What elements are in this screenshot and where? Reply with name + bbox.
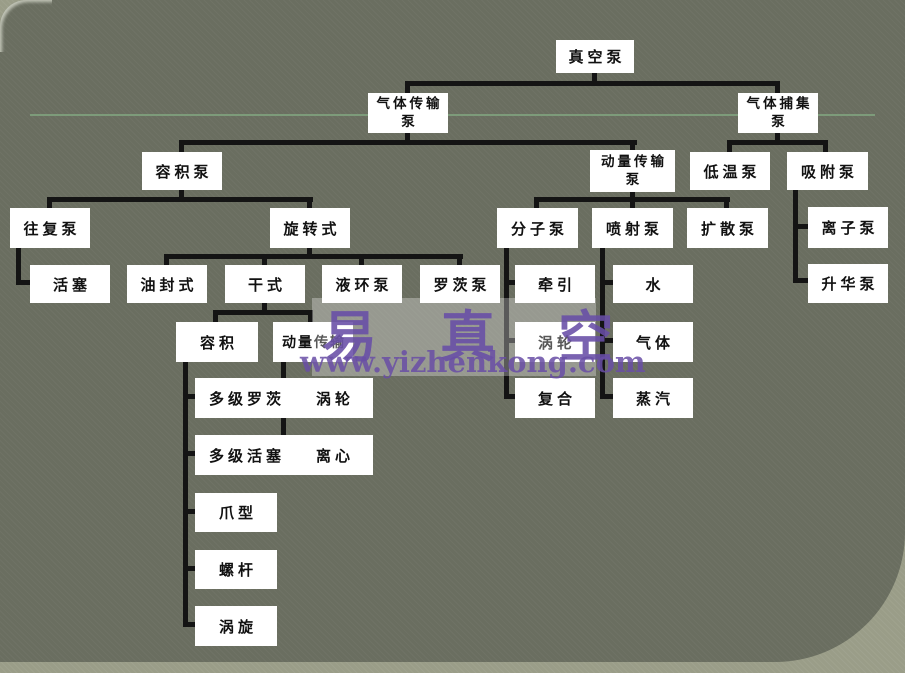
- connector-line: [16, 280, 30, 285]
- node-volume: 容积: [176, 322, 258, 362]
- connector-line: [183, 451, 195, 456]
- node-momentum-transfer-pump: 动量传输泵: [590, 150, 675, 192]
- connector-line: [823, 144, 828, 152]
- connector-line: [213, 314, 218, 322]
- connector-line: [179, 140, 637, 145]
- connector-line: [359, 258, 364, 265]
- connector-line: [405, 84, 410, 93]
- node-gas-transfer-pump: 气体传输泵: [368, 93, 448, 133]
- node-water: 水: [613, 265, 693, 303]
- connector-line: [504, 394, 515, 399]
- connector-line: [600, 394, 613, 399]
- corner-highlight: [0, 0, 52, 52]
- connector-line: [164, 258, 169, 265]
- connector-line: [307, 201, 312, 208]
- connector-line: [405, 81, 780, 86]
- node-rotary-type: 旋转式: [270, 208, 350, 248]
- node-steam: 蒸汽: [613, 378, 693, 418]
- node-piston: 活塞: [30, 265, 110, 303]
- node-diffusion-pump: 扩散泵: [687, 208, 768, 248]
- node-vacuum-pump: 真空泵: [556, 40, 634, 73]
- node-multistage-piston: 多级活塞: [195, 435, 295, 475]
- connector-line: [457, 258, 462, 265]
- connector-line: [727, 144, 732, 152]
- node-screw: 螺杆: [195, 550, 277, 589]
- connector-line: [183, 394, 195, 399]
- connector-line: [183, 566, 195, 571]
- connector-line: [183, 622, 195, 627]
- watermark-url-text: www.yizhenkong.com: [300, 345, 600, 379]
- connector-line: [600, 280, 613, 285]
- node-claw: 爪型: [195, 493, 277, 532]
- connector-line: [183, 362, 188, 625]
- connector-line: [164, 254, 463, 259]
- node-ion-pump: 离子泵: [808, 207, 888, 248]
- connector-line: [262, 258, 267, 265]
- node-sublimation-pump: 升华泵: [808, 264, 888, 303]
- node-multistage-roots: 多级罗茨: [195, 378, 295, 418]
- node-cryo-pump: 低温泵: [690, 152, 770, 190]
- connector-line: [179, 144, 184, 152]
- connector-line: [213, 310, 313, 315]
- connector-line: [47, 201, 52, 208]
- connector-line: [793, 190, 798, 283]
- node-oil-sealed: 油封式: [127, 265, 207, 303]
- node-gas-capture-pump: 气体捕集泵: [738, 93, 818, 133]
- node-turbine: 涡轮: [293, 378, 373, 418]
- connector-line: [504, 280, 515, 285]
- node-centrifugal: 离心: [293, 435, 373, 475]
- node-compound: 复合: [515, 378, 595, 418]
- connector-line: [724, 201, 729, 208]
- node-molecular-pump: 分子泵: [497, 208, 578, 248]
- node-dry-type: 干式: [225, 265, 305, 303]
- connector-line: [183, 509, 195, 514]
- slide: { "title": "真空泵分类图", "colors": { "slide_…: [0, 0, 905, 673]
- connector-line: [775, 84, 780, 93]
- connector-line: [727, 140, 828, 145]
- node-scroll: 涡旋: [195, 606, 277, 646]
- connector-line: [793, 224, 808, 229]
- node-jet-pump: 喷射泵: [592, 208, 673, 248]
- connector-line: [793, 278, 808, 283]
- node-adsorption-pump: 吸附泵: [787, 152, 868, 190]
- connector-line: [47, 197, 313, 202]
- connector-line: [534, 201, 539, 208]
- node-positive-displacement-pump: 容积泵: [142, 152, 222, 190]
- connector-line: [630, 201, 635, 208]
- node-reciprocating-pump: 往复泵: [10, 208, 90, 248]
